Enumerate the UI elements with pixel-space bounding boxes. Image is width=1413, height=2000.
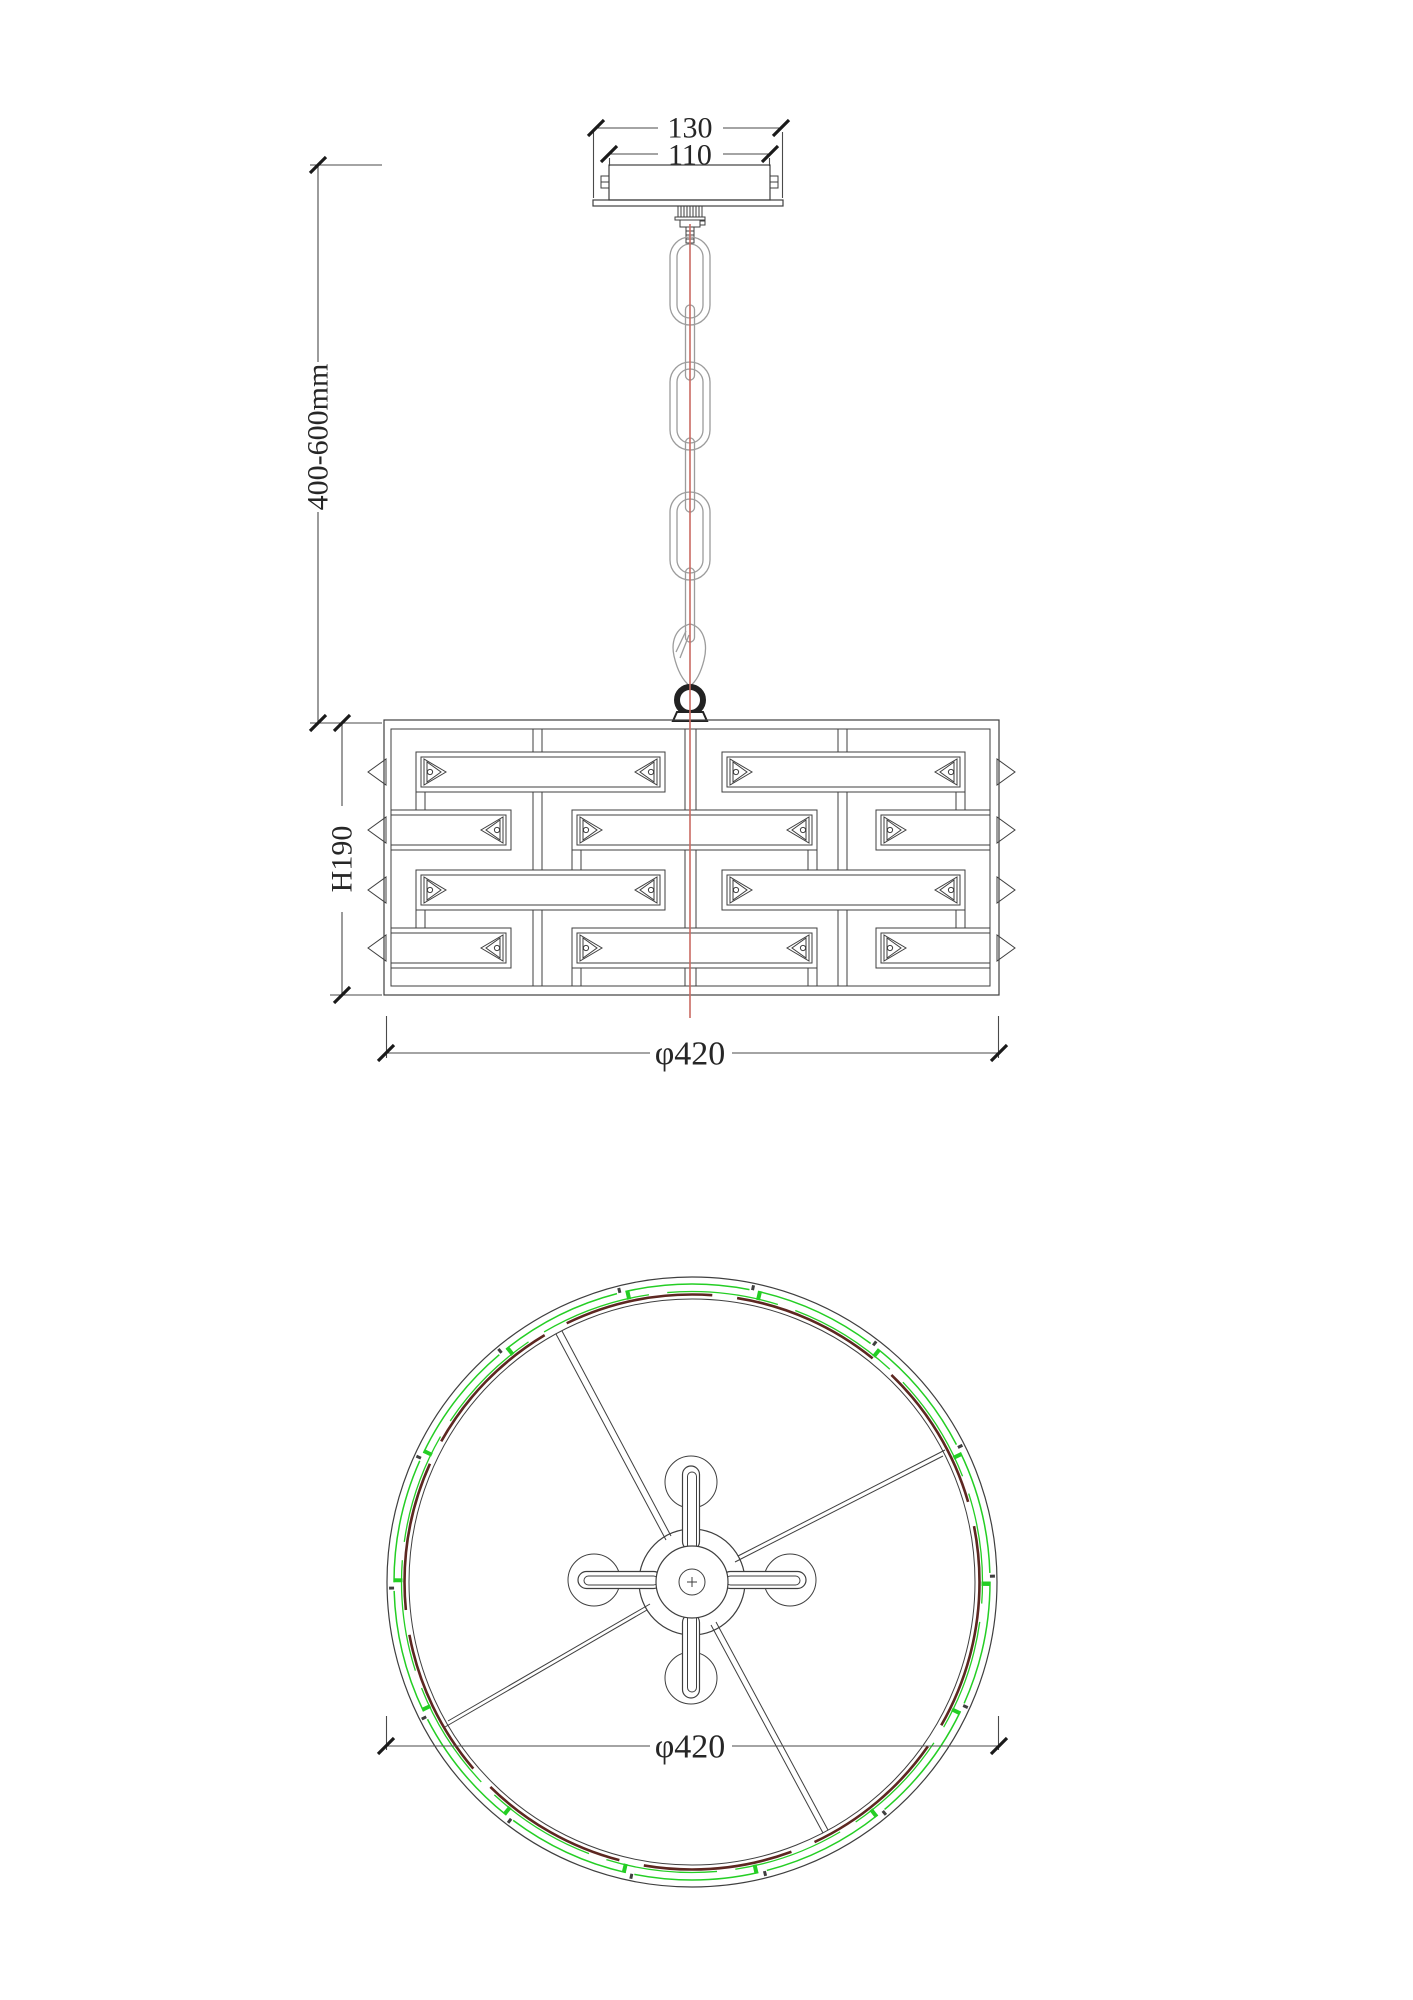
crystal-bar <box>876 810 990 850</box>
plan-view <box>387 1277 997 1887</box>
suspension-length-label: 400-600mm <box>302 364 335 511</box>
crystal-bar <box>722 870 965 910</box>
dimension-suspension-400-600: 400-600mm <box>302 157 383 731</box>
crystal-bar <box>722 752 965 792</box>
ceiling-canopy <box>593 165 783 243</box>
dimension-shade-height-h190: H190 <box>326 715 383 1003</box>
crystal-bar <box>391 810 511 850</box>
dimension-shade-diameter-side: φ420 <box>378 1016 1007 1073</box>
dimension-canopy-body-110: 110 <box>601 139 778 172</box>
edge-crystal-tips <box>368 759 1015 961</box>
dimension-shade-diameter-plan: φ420 <box>378 1716 1007 1766</box>
crystal-bar <box>416 870 665 910</box>
shade-height-label: H190 <box>326 826 359 893</box>
crystal-bar <box>416 752 665 792</box>
canopy-body-width-label: 110 <box>668 139 712 172</box>
shade-diameter-plan-label: φ420 <box>655 1729 726 1766</box>
drum-shade-side-view <box>368 720 1015 995</box>
pendant-lamp-drawing: 130 110 <box>0 0 1413 2000</box>
technical-drawing-page: 130 110 <box>0 0 1413 2000</box>
crystal-bar <box>391 928 511 968</box>
shade-diameter-side-label: φ420 <box>655 1036 726 1073</box>
crystal-bar <box>876 928 990 968</box>
crystal-bar <box>572 928 817 968</box>
crystal-bar <box>572 810 817 850</box>
